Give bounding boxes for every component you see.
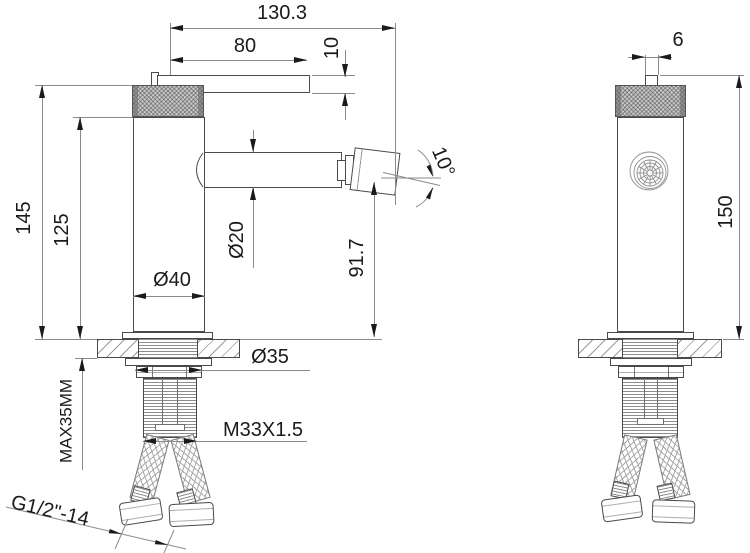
- dim-arrowhead: [109, 529, 122, 534]
- washer-front: [610, 358, 692, 366]
- shank-bore-line: [162, 380, 163, 424]
- extension-line: [660, 75, 744, 76]
- dim-total-height: 150: [716, 195, 736, 228]
- nut-facet-line: [152, 367, 153, 377]
- hose-nut-left-front: [601, 494, 644, 522]
- dim-arrowhead: [135, 367, 148, 373]
- base-flange-side: [122, 332, 213, 339]
- lock-nut-front: [618, 366, 684, 378]
- spout-tube: [203, 152, 342, 188]
- extension-line: [35, 339, 97, 340]
- dim-line: [170, 60, 307, 61]
- dim-line: [170, 28, 395, 29]
- dim-arrowhead: [77, 326, 83, 339]
- dim-arrowhead: [143, 438, 156, 444]
- dim-arrowhead: [192, 293, 205, 299]
- dim-arrowhead: [155, 540, 168, 545]
- extension-line: [35, 85, 132, 86]
- dim-arrowhead: [736, 326, 742, 339]
- shank-bore-line: [657, 380, 658, 418]
- dim-line: [739, 75, 740, 339]
- dim-body-diameter: Ø40: [153, 270, 191, 290]
- dim-arrowhead: [170, 57, 183, 63]
- dim-line: [374, 182, 375, 337]
- dim-handle-thickness: 10: [322, 37, 342, 59]
- technical-drawing-canvas: 130.3 80 10 145 125 Ø40 Ø20 91.7 10° Ø35…: [0, 0, 750, 553]
- dim-arrowhead: [371, 182, 377, 195]
- dim-spout-diameter: Ø20: [227, 221, 247, 259]
- extension-line: [395, 23, 396, 205]
- dim-max-deck-thickness: MAX35MM: [58, 379, 75, 463]
- dim-line: [82, 358, 83, 470]
- shank-bore-stop: [637, 418, 664, 425]
- dim-overall-reach: 130.3: [257, 3, 307, 23]
- dim-line: [135, 370, 310, 371]
- dim-aerator-angle: 10°: [428, 144, 458, 180]
- dim-handle-width: 6: [672, 30, 683, 50]
- dim-arrowhead: [250, 187, 256, 200]
- dim-arrowhead: [371, 324, 377, 337]
- dim-height-to-cap: 145: [14, 201, 34, 234]
- dim-height-to-body-top: 125: [52, 213, 72, 246]
- nut-facet-line: [186, 367, 187, 377]
- faucet-body-front: [617, 117, 684, 332]
- hose-nut-right: [168, 502, 214, 527]
- dim-hose-thread: G1/2"-14: [9, 492, 91, 529]
- extension-line: [240, 339, 382, 340]
- washer-side: [125, 358, 212, 366]
- extension-line: [312, 93, 355, 94]
- faucet-body-side: [133, 117, 205, 332]
- dim-arrowhead: [170, 25, 183, 31]
- dim-arrowhead: [342, 93, 348, 106]
- dim-shank-thread: M33X1.5: [223, 420, 303, 440]
- threaded-shank-front: [622, 378, 678, 438]
- knurled-cap-side: [132, 85, 204, 117]
- hose-nut-left: [118, 497, 163, 526]
- shank-through-deck-side: [138, 339, 198, 358]
- dim-arrowhead: [184, 438, 197, 444]
- angle-arrowhead: [426, 187, 433, 200]
- dim-arrowhead: [250, 139, 256, 152]
- dim-arrowhead: [342, 64, 348, 77]
- dim-spout-height: 91.7: [347, 239, 367, 278]
- nut-facet-line: [668, 367, 669, 377]
- shank-bore-line: [177, 380, 178, 424]
- dim-arrowhead: [382, 25, 395, 31]
- dim-line: [80, 117, 81, 339]
- dim-line: [42, 85, 43, 339]
- hose-nut-right-front: [652, 499, 696, 523]
- knurled-cap-front: [615, 85, 686, 117]
- dim-hole-diameter: Ø35: [251, 347, 289, 367]
- dim-arrowhead: [133, 293, 146, 299]
- dim-arrowhead: [39, 326, 45, 339]
- extension-line: [645, 55, 646, 75]
- nut-facet-line: [634, 367, 635, 377]
- dim-arrowhead: [294, 57, 307, 63]
- dim-arrowhead: [736, 75, 742, 88]
- dim-line: [143, 441, 307, 442]
- shank-bore-stop: [155, 424, 185, 431]
- dim-handle-length: 80: [234, 36, 256, 56]
- shank-bore-line: [644, 380, 645, 418]
- base-flange-front: [607, 332, 694, 339]
- dim-arrowhead: [189, 367, 202, 373]
- dim-arrowhead: [79, 358, 85, 371]
- dim-arrowhead: [39, 85, 45, 98]
- dim-arrowhead: [632, 54, 645, 60]
- extension-line: [723, 339, 744, 340]
- dim-arrowhead: [658, 54, 671, 60]
- shank-through-deck-front: [622, 339, 678, 358]
- dim-arrowhead: [77, 117, 83, 130]
- extension-line: [312, 75, 355, 76]
